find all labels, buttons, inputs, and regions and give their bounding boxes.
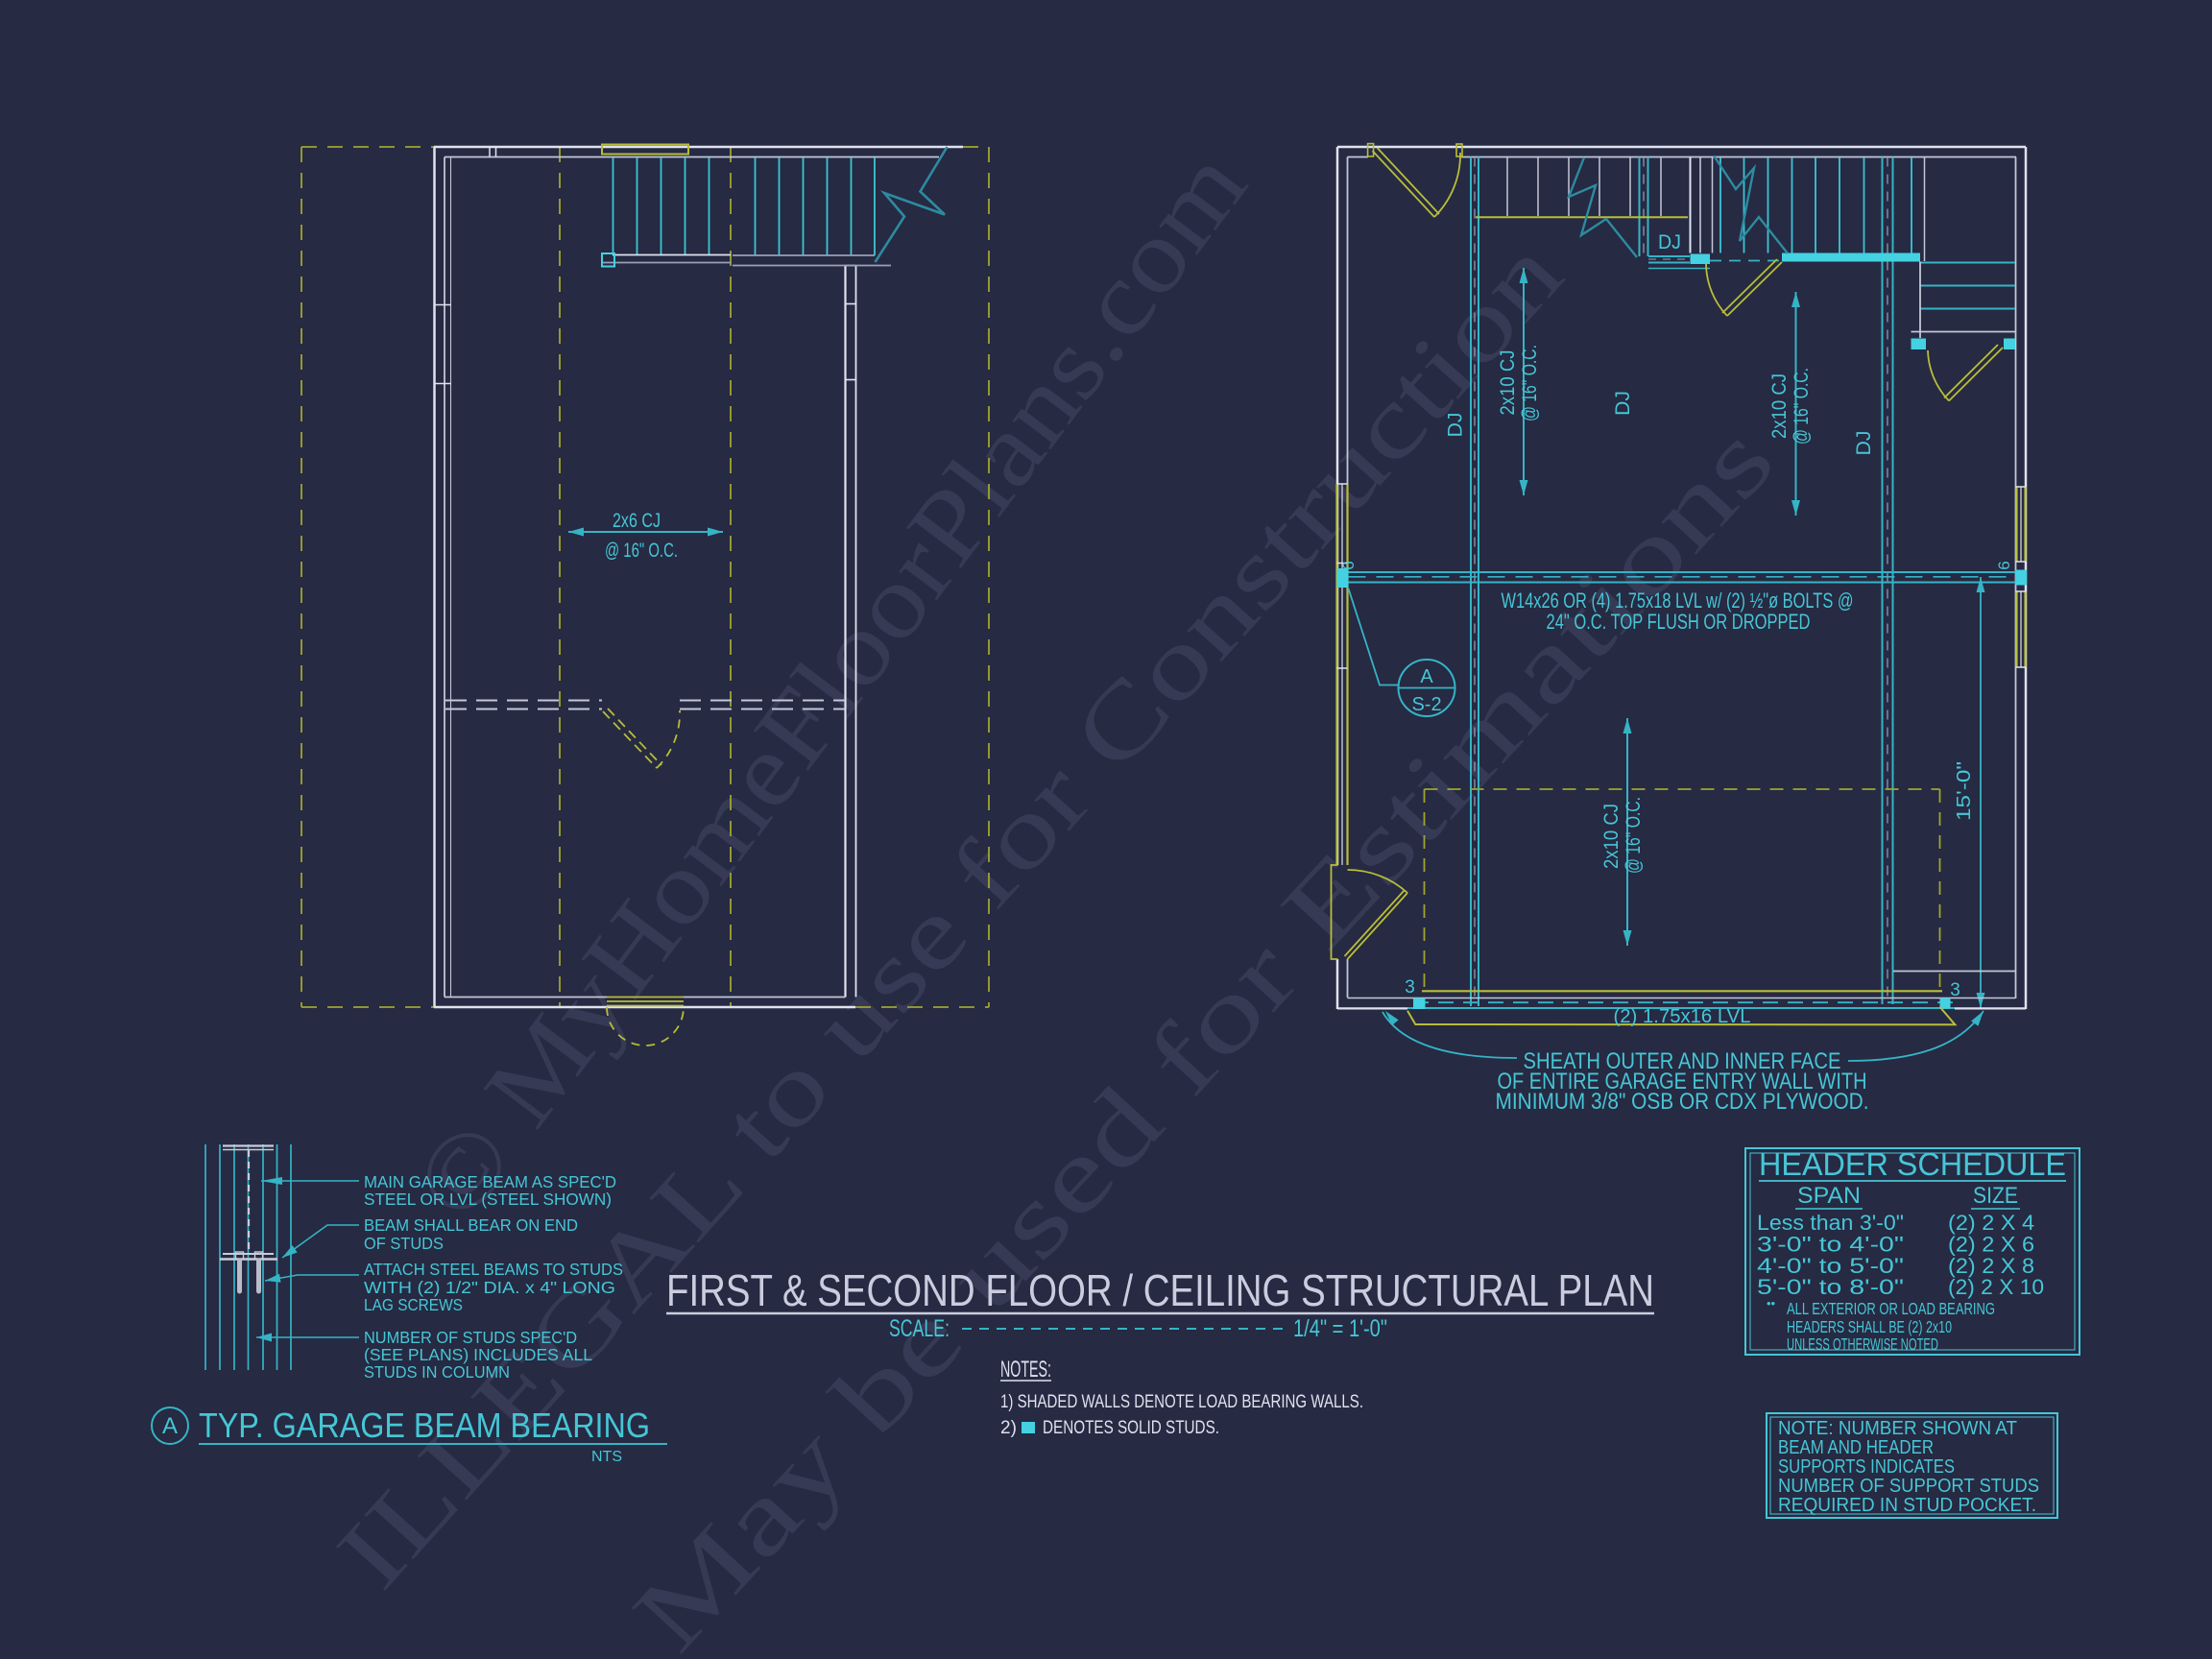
svg-text:WITH (2) 1/2" DIA. x 4" LONG: WITH (2) 1/2" DIA. x 4" LONG xyxy=(364,1278,615,1297)
svg-text:STUDS IN COLUMN: STUDS IN COLUMN xyxy=(364,1362,510,1382)
svg-text:DJ: DJ xyxy=(1853,431,1875,456)
svg-text:HEADER SCHEDULE: HEADER SCHEDULE xyxy=(1759,1146,2066,1182)
svg-text:1) SHADED WALLS DENOTE LOAD BE: 1) SHADED WALLS DENOTE LOAD BEARING WALL… xyxy=(1000,1392,1363,1412)
svg-text:SIZE: SIZE xyxy=(1973,1183,2018,1209)
svg-text:SUPPORTS INDICATES: SUPPORTS INDICATES xyxy=(1778,1456,1955,1478)
svg-text:UNLESS OTHERWISE NOTED: UNLESS OTHERWISE NOTED xyxy=(1787,1334,1938,1354)
svg-text:24" O.C. TOP FLUSH OR DROPPED: 24" O.C. TOP FLUSH OR DROPPED xyxy=(1547,610,1811,634)
svg-text:OF STUDS: OF STUDS xyxy=(364,1234,444,1253)
svg-text:@ 16" O.C.: @ 16" O.C. xyxy=(1791,368,1813,445)
svg-text:LAG SCREWS: LAG SCREWS xyxy=(364,1295,463,1314)
svg-text:BEAM SHALL BEAR ON END: BEAM SHALL BEAR ON END xyxy=(364,1215,578,1235)
svg-text:FIRST & SECOND FLOOR / CEILING: FIRST & SECOND FLOOR / CEILING STRUCTURA… xyxy=(666,1265,1654,1315)
svg-text:@ 16" O.C.: @ 16" O.C. xyxy=(1519,345,1541,421)
svg-text:(SEE PLANS) INCLUDES ALL: (SEE PLANS) INCLUDES ALL xyxy=(364,1345,592,1364)
svg-text:2x10 CJ: 2x10 CJ xyxy=(1768,373,1791,439)
svg-text:2x10 CJ: 2x10 CJ xyxy=(1600,804,1623,869)
svg-text:ATTACH STEEL BEAMS TO STUDS: ATTACH STEEL BEAMS TO STUDS xyxy=(364,1260,623,1279)
svg-text:HEADERS SHALL BE (2) 2x10: HEADERS SHALL BE (2) 2x10 xyxy=(1787,1317,1952,1336)
svg-text:@ 16" O.C.: @ 16" O.C. xyxy=(605,540,678,562)
svg-text:2): 2) xyxy=(1000,1418,1017,1438)
svg-text:(2) 1.75x16 LVL: (2) 1.75x16 LVL xyxy=(1614,1006,1751,1027)
svg-text:S-2: S-2 xyxy=(1411,694,1441,715)
svg-text:6: 6 xyxy=(1339,561,1358,569)
svg-text:(2) 2 X 10: (2) 2 X 10 xyxy=(1948,1275,2044,1299)
svg-text:REQUIRED IN STUD POCKET.: REQUIRED IN STUD POCKET. xyxy=(1778,1495,2036,1516)
svg-text:15'-0": 15'-0" xyxy=(1954,761,1975,821)
svg-text:NUMBER OF STUDS SPEC'D: NUMBER OF STUDS SPEC'D xyxy=(364,1328,577,1347)
svg-text:1/4" = 1'-0": 1/4" = 1'-0" xyxy=(1293,1315,1387,1342)
svg-text:@ 16" O.C.: @ 16" O.C. xyxy=(1623,797,1645,874)
svg-text:3: 3 xyxy=(1950,980,1960,1000)
svg-text:2x10 CJ: 2x10 CJ xyxy=(1497,350,1519,416)
svg-text:Less than 3'-0": Less than 3'-0" xyxy=(1757,1211,1904,1235)
svg-text:DENOTES SOLID STUDS.: DENOTES SOLID STUDS. xyxy=(1043,1418,1219,1438)
svg-text:5'-0" to 8'-0": 5'-0" to 8'-0" xyxy=(1757,1275,1904,1299)
svg-text:DJ: DJ xyxy=(1612,391,1634,416)
svg-text:(2) 2 X 4: (2) 2 X 4 xyxy=(1948,1211,2034,1235)
svg-text:NTS: NTS xyxy=(591,1449,622,1465)
svg-text:NUMBER OF SUPPORT STUDS: NUMBER OF SUPPORT STUDS xyxy=(1778,1476,2039,1497)
svg-text:SPAN: SPAN xyxy=(1797,1183,1861,1209)
svg-text:A: A xyxy=(162,1413,178,1439)
svg-text:A: A xyxy=(1420,666,1433,687)
svg-text:(2) 2 X 6: (2) 2 X 6 xyxy=(1948,1233,2034,1257)
svg-text:SCALE:: SCALE: xyxy=(889,1315,950,1342)
svg-text:TYP. GARAGE BEAM BEARING: TYP. GARAGE BEAM BEARING xyxy=(199,1406,650,1445)
svg-text:MAIN GARAGE BEAM AS SPEC'D: MAIN GARAGE BEAM AS SPEC'D xyxy=(364,1172,616,1191)
svg-text:DJ: DJ xyxy=(1658,231,1681,253)
svg-text:STEEL OR LVL (STEEL SHOWN): STEEL OR LVL (STEEL SHOWN) xyxy=(364,1190,612,1209)
svg-text:3'-0" to 4'-0": 3'-0" to 4'-0" xyxy=(1757,1233,1904,1257)
svg-text:••: •• xyxy=(1767,1296,1776,1310)
svg-text:DJ: DJ xyxy=(1445,413,1467,438)
svg-text:3: 3 xyxy=(1405,977,1415,998)
svg-text:MINIMUM 3/8" OSB OR CDX PLYWOO: MINIMUM 3/8" OSB OR CDX PLYWOOD. xyxy=(1496,1089,1869,1115)
svg-text:NOTE: NUMBER SHOWN AT: NOTE: NUMBER SHOWN AT xyxy=(1778,1418,2017,1439)
svg-text:2x6 CJ: 2x6 CJ xyxy=(613,510,661,532)
svg-text:ALL EXTERIOR OR LOAD BEARING: ALL EXTERIOR OR LOAD BEARING xyxy=(1787,1299,1995,1318)
svg-text:6: 6 xyxy=(1995,561,2013,569)
svg-text:BEAM AND HEADER: BEAM AND HEADER xyxy=(1778,1437,1934,1458)
svg-text:NOTES:: NOTES: xyxy=(1000,1357,1051,1382)
